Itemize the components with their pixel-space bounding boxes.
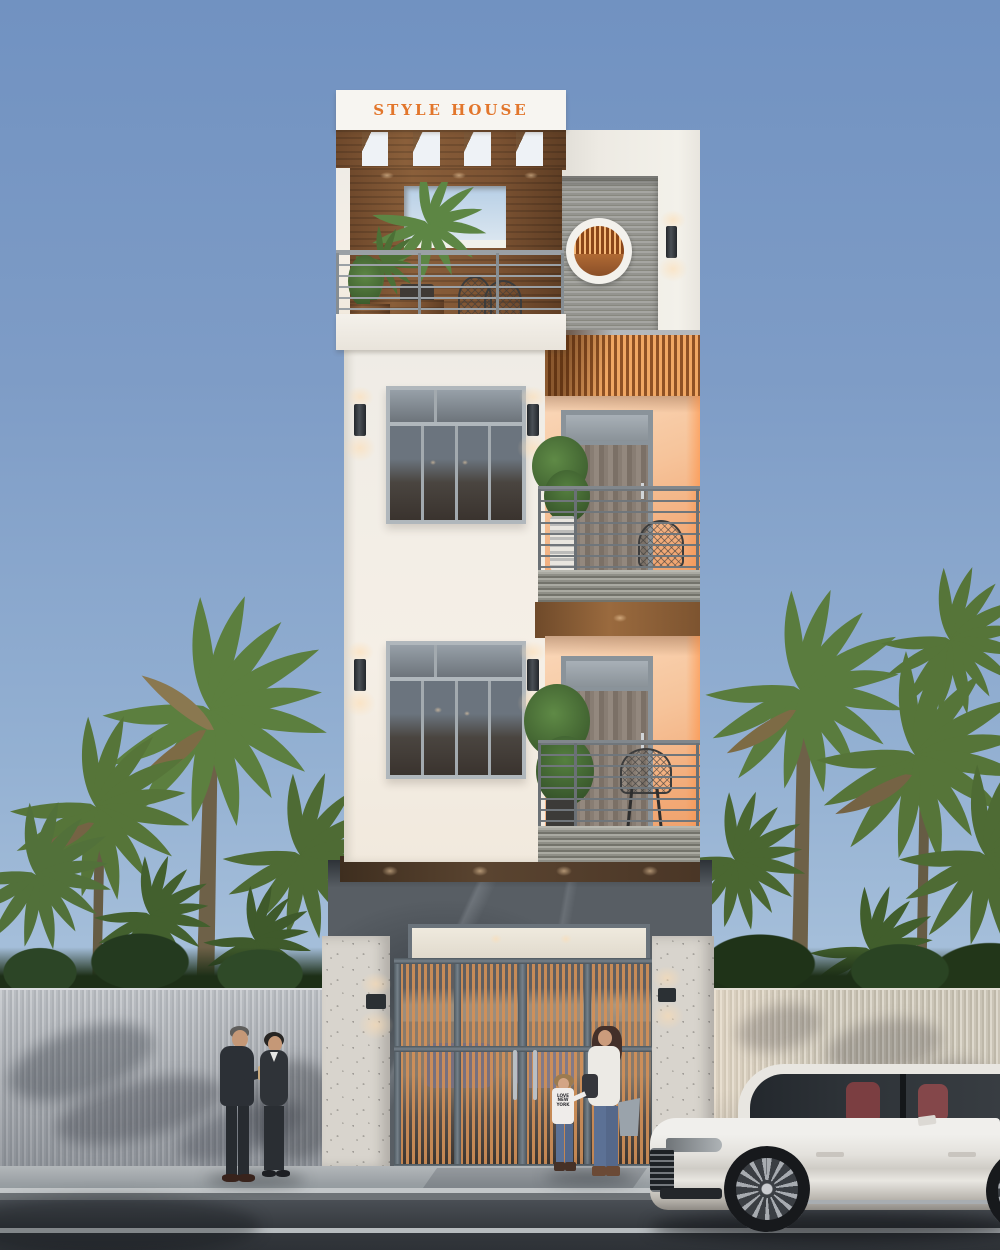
pergola-downlight	[452, 172, 466, 179]
man-shoe	[238, 1174, 255, 1182]
tower-wall-sconce	[666, 226, 677, 258]
floor3-window	[386, 386, 526, 524]
railing-post	[336, 253, 339, 321]
downlight	[642, 866, 658, 876]
circular-window-louvers	[574, 226, 624, 254]
interior-light-dot	[434, 707, 442, 713]
railing-post	[574, 743, 577, 831]
woman-shoe	[262, 1170, 276, 1177]
mother-boot	[606, 1166, 620, 1176]
railing-post	[538, 489, 541, 575]
building-sign-text: STYLE HOUSE	[336, 101, 566, 119]
girl-shirt: LOVE NEW YORK	[552, 1088, 574, 1124]
terrace-railing	[336, 250, 564, 321]
interior-light-dot	[462, 460, 468, 465]
car-grille	[650, 1148, 674, 1192]
car-door-handle	[948, 1152, 976, 1157]
sconce-glow	[658, 256, 688, 282]
man-leg	[226, 1106, 237, 1176]
woman-leg	[274, 1106, 284, 1170]
railing-post	[418, 253, 421, 321]
window-transom	[390, 645, 522, 681]
render-scene: STYLE HOUSE	[0, 0, 1000, 1250]
pergola-gap	[362, 132, 388, 166]
railing-post	[696, 489, 699, 575]
mullion	[434, 390, 437, 422]
floor3-balcony-railing	[538, 486, 700, 575]
terrace-parapet	[336, 314, 566, 350]
mullion	[434, 645, 437, 677]
door-handle	[513, 1050, 517, 1100]
awning-shadow	[545, 326, 700, 396]
business-people	[214, 1024, 309, 1186]
railing-post	[561, 253, 564, 321]
wall-lamp	[366, 994, 386, 1009]
girl-boot	[554, 1162, 565, 1171]
interior-light-dot	[430, 460, 436, 465]
shopping-bag	[618, 1098, 640, 1136]
lamp-glow	[358, 1010, 394, 1040]
window-panes	[390, 426, 522, 520]
parked-sedan	[650, 1064, 1000, 1250]
lamp-glow	[652, 1002, 684, 1030]
railing-post	[496, 253, 499, 321]
girl-shirt-text: LOVE NEW YORK	[552, 1094, 574, 1107]
downlight	[556, 866, 572, 876]
car-door-handle	[816, 1152, 844, 1157]
woman-shoe	[276, 1170, 290, 1177]
interior-light-dot	[464, 711, 470, 716]
door-transom	[566, 415, 648, 445]
pergola-downlight	[380, 172, 394, 179]
door-frame	[518, 958, 527, 1170]
window-pane	[421, 426, 455, 520]
car-front-wheel	[724, 1146, 810, 1232]
pergola-downlight	[524, 172, 538, 179]
pergola-gap	[464, 132, 491, 166]
mother-and-daughter: LOVE NEW YORK	[548, 1022, 648, 1186]
wall-sconce	[354, 404, 366, 436]
girl-boot	[565, 1162, 576, 1171]
pergola-gap	[516, 132, 543, 166]
wall-sconce	[354, 659, 366, 691]
gate-pillar-left	[322, 936, 390, 1168]
railing-post	[538, 743, 541, 831]
window-pane	[455, 681, 489, 775]
interior-downlight	[560, 934, 572, 944]
window-pane	[390, 681, 421, 775]
window-pane	[455, 426, 489, 520]
lamp-glow	[360, 972, 392, 996]
door-handle	[533, 1050, 537, 1100]
mother-jeans-leg	[594, 1106, 606, 1168]
mother-boot	[592, 1166, 606, 1176]
circular-window	[574, 226, 624, 276]
circular-window-lower	[574, 254, 624, 276]
lamp-glow	[652, 966, 682, 990]
man-leg	[238, 1106, 249, 1176]
sconce-glow	[344, 434, 376, 462]
window-panes	[390, 681, 522, 775]
soffit-downlight	[613, 614, 627, 622]
pergola-gap	[413, 132, 440, 166]
floor3-balcony-parapet	[538, 570, 700, 606]
downlight	[472, 866, 488, 876]
door-frame-top	[394, 958, 658, 964]
mother-jeans-leg	[606, 1106, 618, 1168]
railing-post	[574, 489, 577, 575]
door-transom	[566, 661, 648, 691]
floor3-awning	[545, 326, 700, 396]
window-transom	[390, 390, 522, 426]
wall-sconce	[527, 404, 539, 436]
car-intake	[660, 1188, 722, 1199]
window-pane	[421, 681, 455, 775]
floor3-balcony-soffit	[535, 602, 700, 638]
railing-post	[696, 743, 699, 831]
woman-leg	[264, 1106, 274, 1170]
sconce-glow	[344, 689, 376, 717]
door-frame	[394, 958, 401, 1170]
girl-jeans-leg	[565, 1124, 573, 1164]
car-shadow	[650, 1212, 1000, 1242]
floor2-window	[386, 641, 526, 779]
floor2-balcony-railing	[538, 740, 700, 831]
car-headlight	[666, 1138, 722, 1152]
interior-downlight	[490, 934, 502, 944]
downlight	[382, 866, 398, 876]
car-windows	[750, 1074, 1000, 1124]
window-pane	[390, 426, 421, 520]
girl-jeans-leg	[556, 1124, 564, 1164]
car-b-pillar	[900, 1074, 906, 1124]
rooftop-sign-band: STYLE HOUSE	[336, 90, 566, 130]
mother-head	[598, 1030, 612, 1046]
door-frame	[454, 958, 461, 1170]
wall-lamp	[658, 988, 676, 1002]
wall-sconce	[527, 659, 539, 691]
floor2-balcony-parapet	[538, 826, 700, 862]
